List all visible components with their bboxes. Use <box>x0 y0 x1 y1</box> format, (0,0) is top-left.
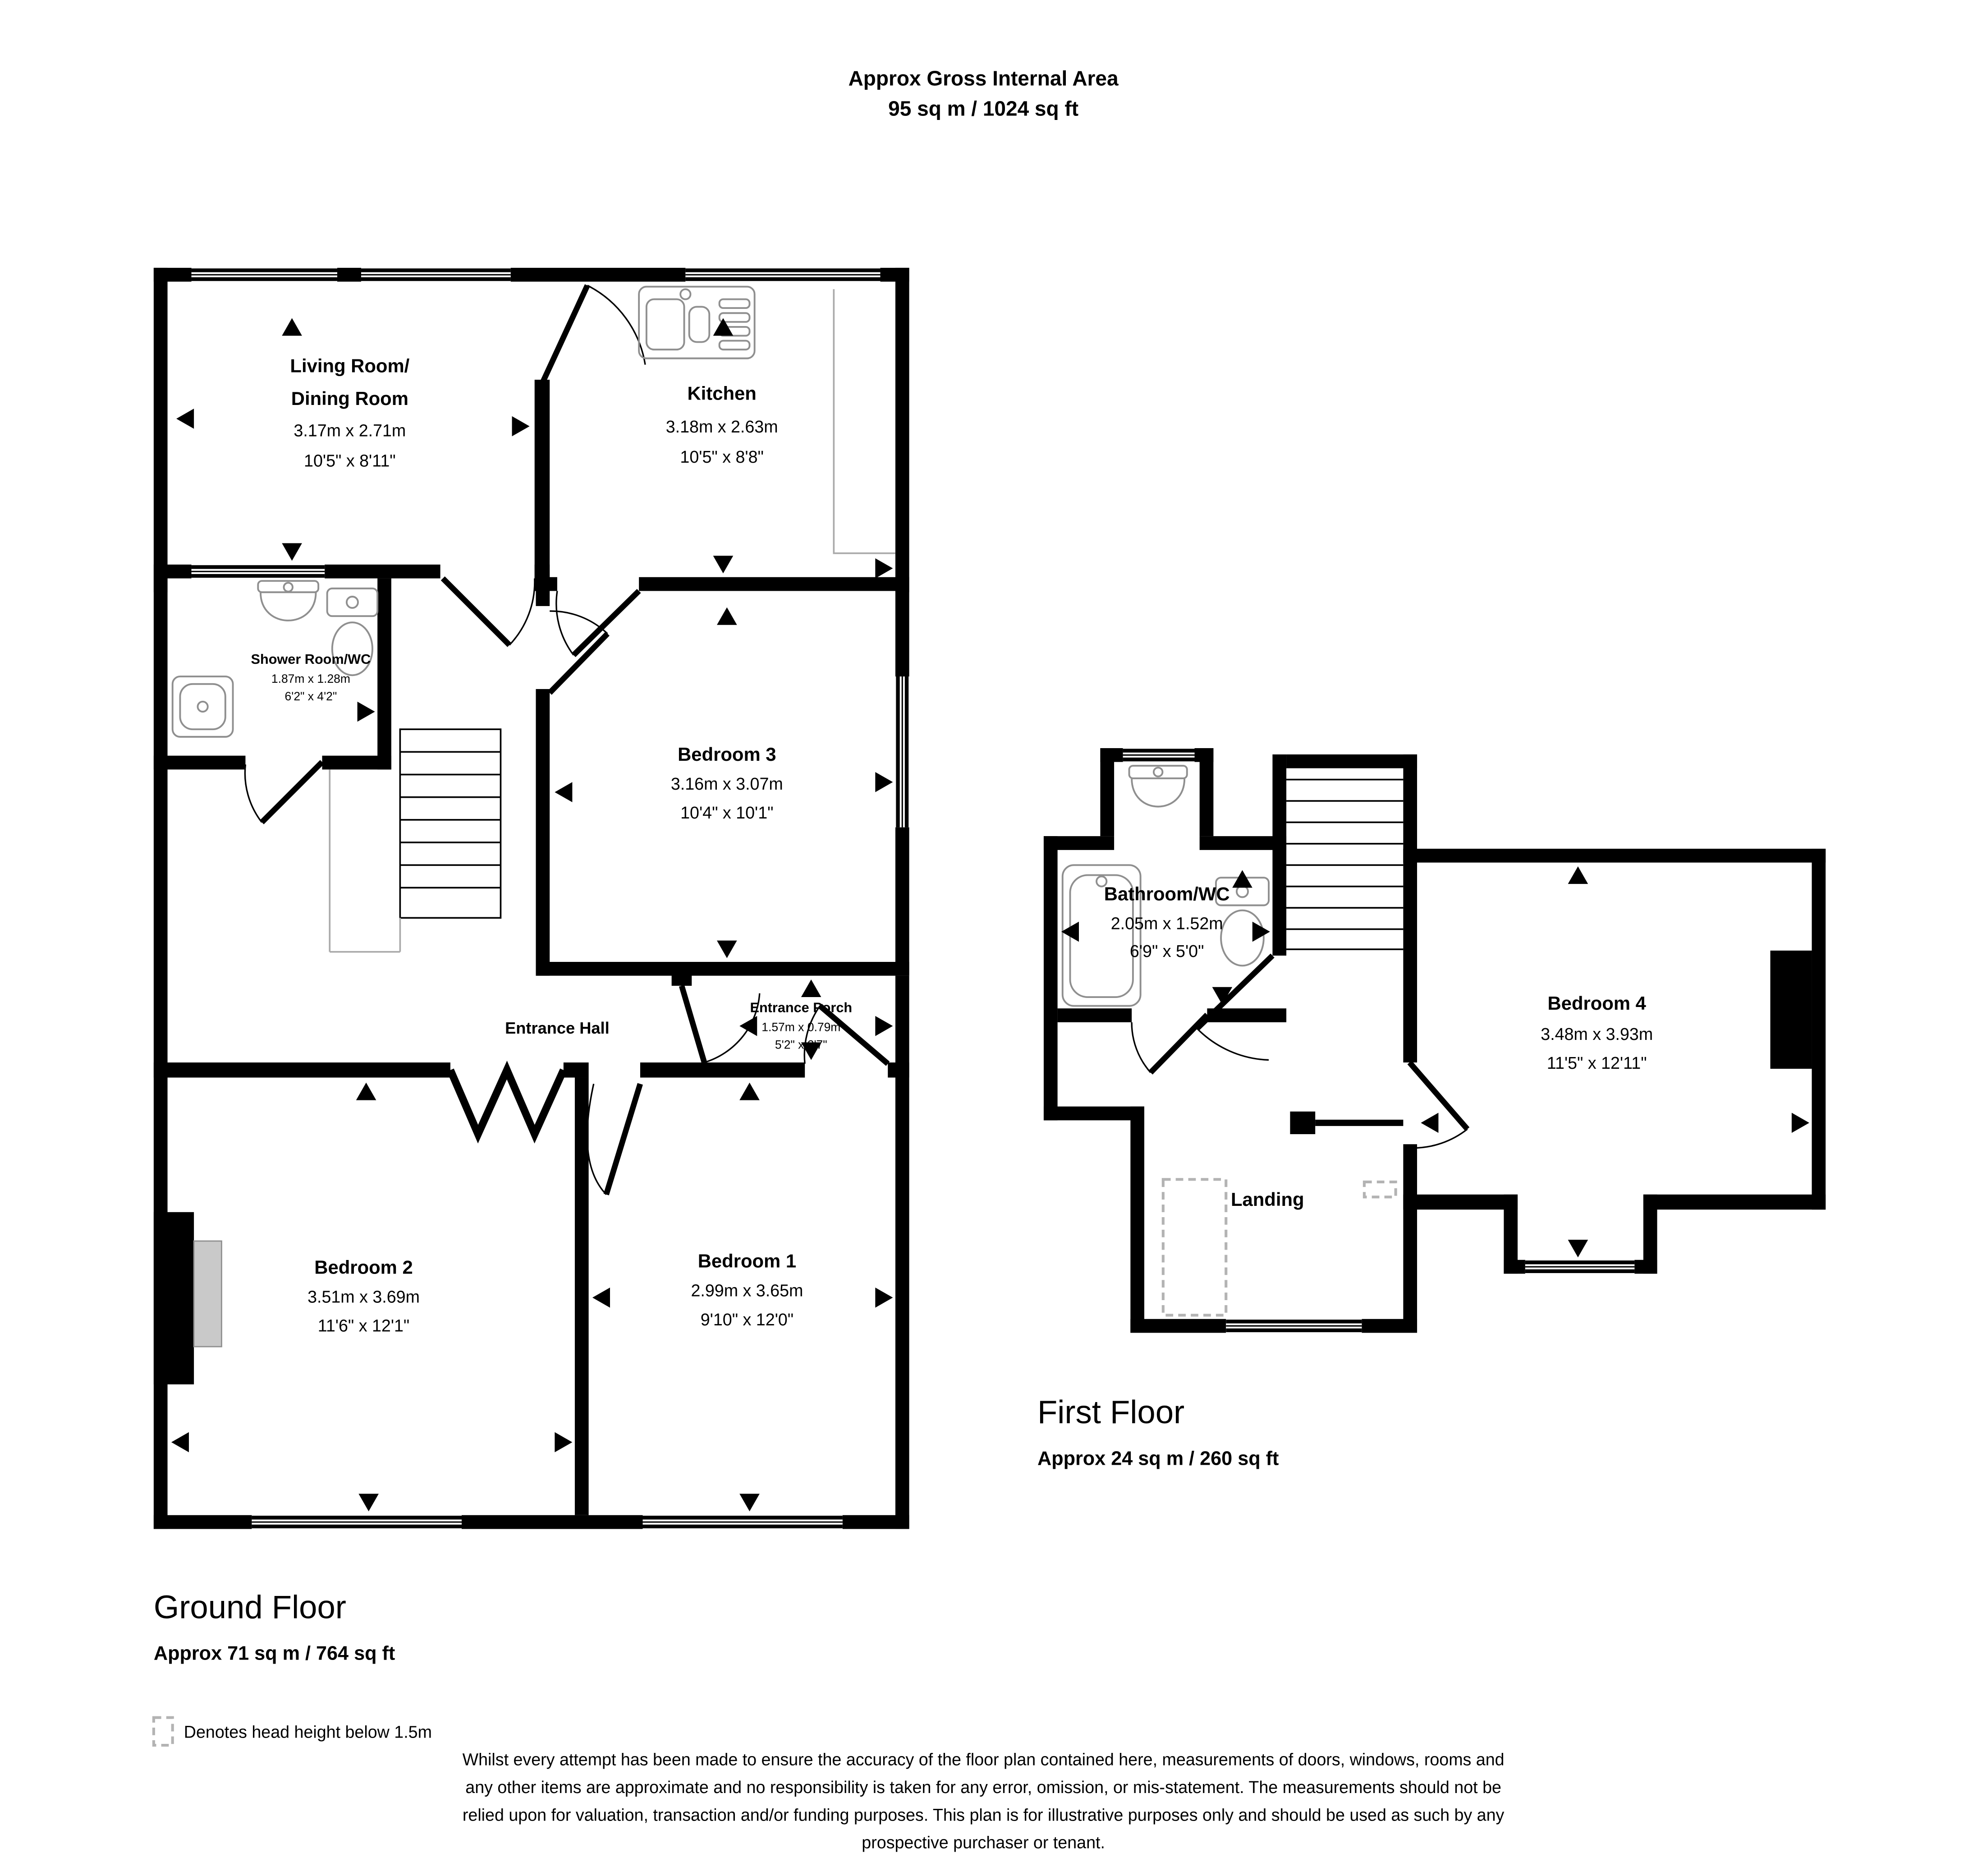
chimney-breast-bed4 <box>1771 951 1812 1069</box>
bedroom4-metric: 3.48m x 3.93m <box>1541 1025 1653 1044</box>
head-height-legend-text: Denotes head height below 1.5m <box>184 1722 432 1741</box>
living-room-imperial: 10'5" x 8'11" <box>304 451 396 470</box>
bedroom2-label: Bedroom 2 <box>314 1256 413 1278</box>
first-floor-area: Approx 24 sq m / 260 sq ft <box>1037 1448 1279 1469</box>
first-floor-heading: First Floor <box>1037 1394 1184 1430</box>
window <box>685 268 880 282</box>
disclaimer-line3: relied upon for valuation, transaction a… <box>463 1805 1505 1824</box>
shower-room-metric: 1.87m x 1.28m <box>271 672 350 685</box>
ground-floor-walls <box>154 268 909 1529</box>
door-bathroom <box>1132 1015 1207 1072</box>
washbasin-icon <box>1129 766 1187 807</box>
floor-headings: First Floor Approx 24 sq m / 260 sq ft G… <box>154 1394 1279 1664</box>
bedroom2-imperial: 11'6" x 12'1" <box>318 1316 410 1335</box>
kitchen-sink-icon <box>639 287 755 359</box>
disclaimer-line2: any other items are approximate and no r… <box>465 1778 1501 1797</box>
entrance-porch-metric: 1.57m x 0.79m <box>762 1020 840 1034</box>
ground-floor-windows <box>192 268 909 1529</box>
door-bedroom4 <box>1409 1062 1467 1148</box>
bedroom3-label: Bedroom 3 <box>678 744 776 765</box>
bedroom2-metric: 3.51m x 3.69m <box>307 1287 420 1306</box>
ground-floor-heading: Ground Floor <box>154 1589 346 1625</box>
kitchen-imperial: 10'5" x 8'8" <box>680 447 763 466</box>
head-height-legend-icon <box>154 1718 173 1745</box>
window <box>1525 1260 1635 1274</box>
door-living-kitchen <box>542 285 645 383</box>
first-floor-labels: Bathroom/WC 2.05m x 1.52m 6'9" x 5'0" Be… <box>1104 883 1653 1210</box>
disclaimer: Whilst every attempt has been made to en… <box>463 1750 1505 1852</box>
bathroom-metric: 2.05m x 1.52m <box>1111 914 1223 933</box>
kitchen-label: Kitchen <box>687 383 756 404</box>
header-line2: 95 sq m / 1024 sq ft <box>888 97 1078 120</box>
first-floor-stairs <box>1286 780 1403 949</box>
bedroom1-imperial: 9'10" x 12'0" <box>701 1310 794 1329</box>
living-room-label: Living Room/ <box>290 355 409 376</box>
bedroom1-metric: 2.99m x 3.65m <box>691 1281 803 1300</box>
ground-floor-area: Approx 71 sq m / 764 sq ft <box>154 1642 395 1664</box>
bedroom4-label: Bedroom 4 <box>1548 993 1647 1014</box>
window <box>1226 1319 1362 1333</box>
head-height-region <box>1163 1179 1226 1315</box>
bedroom3-metric: 3.16m x 3.07m <box>671 774 783 793</box>
door-living-hall <box>443 579 535 645</box>
landing-label: Landing <box>1231 1189 1304 1210</box>
door-landing-stairs <box>1197 956 1272 1060</box>
window <box>192 268 337 282</box>
window <box>643 1515 843 1529</box>
measurement-arrows-ground <box>171 318 893 1511</box>
chimney-breast-bed2 <box>154 1212 194 1384</box>
window <box>895 676 909 828</box>
window <box>192 565 325 579</box>
shower-tray-icon <box>173 676 233 737</box>
shower-room-imperial: 6'2" x 4'2" <box>285 690 337 703</box>
door-hall-porch <box>672 966 760 1062</box>
disclaimer-line4: prospective purchaser or tenant. <box>862 1833 1105 1852</box>
stair-handrail <box>1290 1112 1403 1134</box>
entrance-hall-label: Entrance Hall <box>505 1019 610 1037</box>
bathroom-label: Bathroom/WC <box>1104 883 1230 904</box>
living-room-label2: Dining Room <box>291 388 408 409</box>
kitchen-metric: 3.18m x 2.63m <box>666 417 778 436</box>
bedroom1-label: Bedroom 1 <box>698 1251 796 1272</box>
kitchen-counter-line <box>834 289 895 553</box>
bathroom-imperial: 6'9" x 5'0" <box>1130 942 1204 961</box>
washbasin-icon <box>258 581 318 621</box>
bay-window-bed2 <box>194 1241 221 1347</box>
window <box>252 1515 462 1529</box>
header-line1: Approx Gross Internal Area <box>849 67 1119 90</box>
window <box>1123 748 1195 762</box>
door-bedroom1 <box>587 1084 640 1194</box>
legend: Denotes head height below 1.5m <box>154 1718 432 1745</box>
shower-room-label: Shower Room/WC <box>251 652 371 667</box>
door-shower-room <box>245 762 322 823</box>
bedroom4-imperial: 11'5" x 12'11" <box>1547 1053 1647 1072</box>
head-height-region-small <box>1364 1182 1396 1197</box>
wardrobe-zigzag-bed2 <box>450 1070 564 1134</box>
entrance-porch-label: Entrance Porch <box>750 1000 853 1016</box>
living-room-metric: 3.17m x 2.71m <box>294 421 406 440</box>
first-floor-walls <box>1044 748 1826 1333</box>
window <box>361 268 511 282</box>
floor-plan: Approx Gross Internal Area 95 sq m / 102… <box>0 0 1968 1876</box>
ground-floor-labels: Living Room/ Dining Room 3.17m x 2.71m 1… <box>251 355 853 1335</box>
plan-header: Approx Gross Internal Area 95 sq m / 102… <box>849 67 1119 120</box>
bedroom3-imperial: 10'4" x 10'1" <box>680 803 773 822</box>
entrance-porch-imperial: 5'2" x 2'7" <box>775 1038 827 1051</box>
disclaimer-line1: Whilst every attempt has been made to en… <box>463 1750 1505 1769</box>
